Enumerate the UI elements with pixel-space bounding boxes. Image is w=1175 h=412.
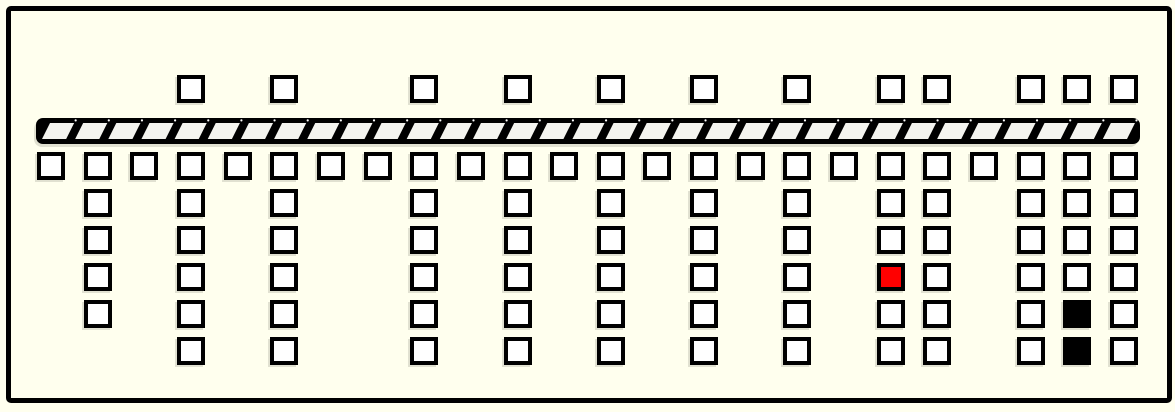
top-square-c17 [783, 75, 811, 103]
grid-square-c19-r2 [877, 189, 905, 217]
grid-square-c22-r4 [1017, 263, 1045, 291]
grid-square-c2-r5 [84, 300, 112, 328]
bar-tick-dot-19 [671, 119, 673, 121]
grid-square-c11-r5 [504, 300, 532, 328]
grid-square-c19-r6 [877, 337, 905, 365]
black-square-c23-r5 [1063, 300, 1091, 328]
bar-tick-dot-15 [539, 119, 541, 121]
red-square-c19-r4 [877, 263, 905, 291]
grid-square-c24-r5 [1110, 300, 1138, 328]
grid-square-c20-r6 [923, 337, 951, 365]
top-square-c20 [923, 75, 951, 103]
grid-square-c4-r1 [177, 152, 205, 180]
grid-square-c9-r6 [410, 337, 438, 365]
grid-square-c4-r6 [177, 337, 205, 365]
grid-square-c18-r1 [830, 152, 858, 180]
grid-square-c13-r5 [597, 300, 625, 328]
top-square-c9 [410, 75, 438, 103]
grid-square-c11-r3 [504, 226, 532, 254]
bar-tick-dot-5 [207, 119, 209, 121]
grid-square-c3-r1 [130, 152, 158, 180]
grid-square-c17-r1 [783, 152, 811, 180]
grid-square-c24-r4 [1110, 263, 1138, 291]
grid-square-c20-r5 [923, 300, 951, 328]
bar-tick-dot-11 [406, 119, 408, 121]
bar-tick-dot-24 [837, 119, 839, 121]
grid-square-c9-r1 [410, 152, 438, 180]
grid-square-c19-r1 [877, 152, 905, 180]
grid-square-c6-r1 [270, 152, 298, 180]
top-square-c23 [1063, 75, 1091, 103]
grid-square-c11-r1 [504, 152, 532, 180]
grid-square-c20-r3 [923, 226, 951, 254]
bar-tick-dot-18 [638, 119, 640, 121]
bar-tick-dot-1 [75, 119, 77, 121]
grid-square-c13-r6 [597, 337, 625, 365]
grid-square-c10-r1 [457, 152, 485, 180]
grid-square-c24-r1 [1110, 152, 1138, 180]
top-square-c19 [877, 75, 905, 103]
grid-square-c9-r2 [410, 189, 438, 217]
grid-square-c9-r4 [410, 263, 438, 291]
grid-square-c6-r4 [270, 263, 298, 291]
bar-tick-dot-30 [1036, 119, 1038, 121]
grid-square-c22-r1 [1017, 152, 1045, 180]
grid-square-c15-r1 [690, 152, 718, 180]
diagram-stage [0, 0, 1175, 412]
grid-square-c11-r2 [504, 189, 532, 217]
grid-square-c15-r5 [690, 300, 718, 328]
grid-square-c19-r5 [877, 300, 905, 328]
grid-square-c23-r1 [1063, 152, 1091, 180]
grid-square-c2-r4 [84, 263, 112, 291]
grid-square-c9-r3 [410, 226, 438, 254]
bar-tick-dot-14 [506, 119, 508, 121]
grid-square-c20-r4 [923, 263, 951, 291]
grid-square-c17-r6 [783, 337, 811, 365]
top-square-c24 [1110, 75, 1138, 103]
grid-square-c24-r3 [1110, 226, 1138, 254]
grid-square-c4-r3 [177, 226, 205, 254]
grid-square-c15-r4 [690, 263, 718, 291]
bar-tick-dot-8 [307, 119, 309, 121]
grid-square-c22-r5 [1017, 300, 1045, 328]
top-square-c11 [504, 75, 532, 103]
bar-tick-dot-26 [903, 119, 905, 121]
top-square-c15 [690, 75, 718, 103]
bar-tick-dot-21 [738, 119, 740, 121]
bar-tick-dot-27 [936, 119, 938, 121]
grid-square-c14-r1 [643, 152, 671, 180]
grid-square-c5-r1 [224, 152, 252, 180]
bar-tick-dot-9 [340, 119, 342, 121]
grid-square-c21-r1 [970, 152, 998, 180]
bar-tick-dot-3 [141, 119, 143, 121]
grid-square-c2-r2 [84, 189, 112, 217]
grid-square-c6-r6 [270, 337, 298, 365]
bar-tick-dot-33 [1135, 119, 1137, 121]
grid-square-c16-r1 [737, 152, 765, 180]
grid-square-c17-r3 [783, 226, 811, 254]
bar-tick-dot-23 [804, 119, 806, 121]
grid-square-c4-r4 [177, 263, 205, 291]
bar-tick-dot-29 [1003, 119, 1005, 121]
bar-tick-dot-2 [108, 119, 110, 121]
grid-square-c2-r1 [84, 152, 112, 180]
grid-square-c11-r4 [504, 263, 532, 291]
grid-square-c20-r1 [923, 152, 951, 180]
grid-square-c23-r2 [1063, 189, 1091, 217]
grid-square-c9-r5 [410, 300, 438, 328]
grid-square-c22-r2 [1017, 189, 1045, 217]
grid-square-c13-r1 [597, 152, 625, 180]
grid-square-c20-r2 [923, 189, 951, 217]
grid-square-c17-r5 [783, 300, 811, 328]
grid-square-c1-r1 [37, 152, 65, 180]
grid-square-c4-r5 [177, 300, 205, 328]
bar-tick-dot-31 [1069, 119, 1071, 121]
hatched-bar-graphic [36, 118, 1140, 144]
grid-square-c8-r1 [364, 152, 392, 180]
grid-square-c17-r4 [783, 263, 811, 291]
grid-square-c17-r2 [783, 189, 811, 217]
bar-tick-dot-22 [771, 119, 773, 121]
grid-square-c6-r2 [270, 189, 298, 217]
grid-square-c22-r3 [1017, 226, 1045, 254]
grid-square-c6-r5 [270, 300, 298, 328]
top-square-c4 [177, 75, 205, 103]
bar-tick-dot-7 [273, 119, 275, 121]
top-square-c13 [597, 75, 625, 103]
grid-square-c24-r6 [1110, 337, 1138, 365]
grid-square-c15-r6 [690, 337, 718, 365]
grid-square-c23-r3 [1063, 226, 1091, 254]
grid-square-c24-r2 [1110, 189, 1138, 217]
bar-tick-dot-20 [704, 119, 706, 121]
grid-square-c15-r3 [690, 226, 718, 254]
hatched-bar [36, 118, 1140, 144]
grid-square-c12-r1 [550, 152, 578, 180]
grid-square-c22-r6 [1017, 337, 1045, 365]
bar-tick-dot-6 [240, 119, 242, 121]
bar-tick-dot-32 [1102, 119, 1104, 121]
bar-tick-dot-28 [970, 119, 972, 121]
bar-tick-dot-4 [174, 119, 176, 121]
grid-square-c23-r4 [1063, 263, 1091, 291]
top-square-c22 [1017, 75, 1045, 103]
bar-tick-dot-17 [605, 119, 607, 121]
bar-tick-dot-10 [373, 119, 375, 121]
bar-tick-dot-16 [572, 119, 574, 121]
bar-tick-dot-13 [472, 119, 474, 121]
grid-square-c13-r4 [597, 263, 625, 291]
bar-tick-dot-12 [439, 119, 441, 121]
grid-square-c13-r3 [597, 226, 625, 254]
grid-square-c13-r2 [597, 189, 625, 217]
grid-square-c11-r6 [504, 337, 532, 365]
grid-square-c7-r1 [317, 152, 345, 180]
grid-square-c6-r3 [270, 226, 298, 254]
grid-square-c15-r2 [690, 189, 718, 217]
grid-square-c4-r2 [177, 189, 205, 217]
grid-square-c19-r3 [877, 226, 905, 254]
bar-tick-dot-25 [870, 119, 872, 121]
black-square-c23-r6 [1063, 337, 1091, 365]
top-square-c6 [270, 75, 298, 103]
grid-square-c2-r3 [84, 226, 112, 254]
